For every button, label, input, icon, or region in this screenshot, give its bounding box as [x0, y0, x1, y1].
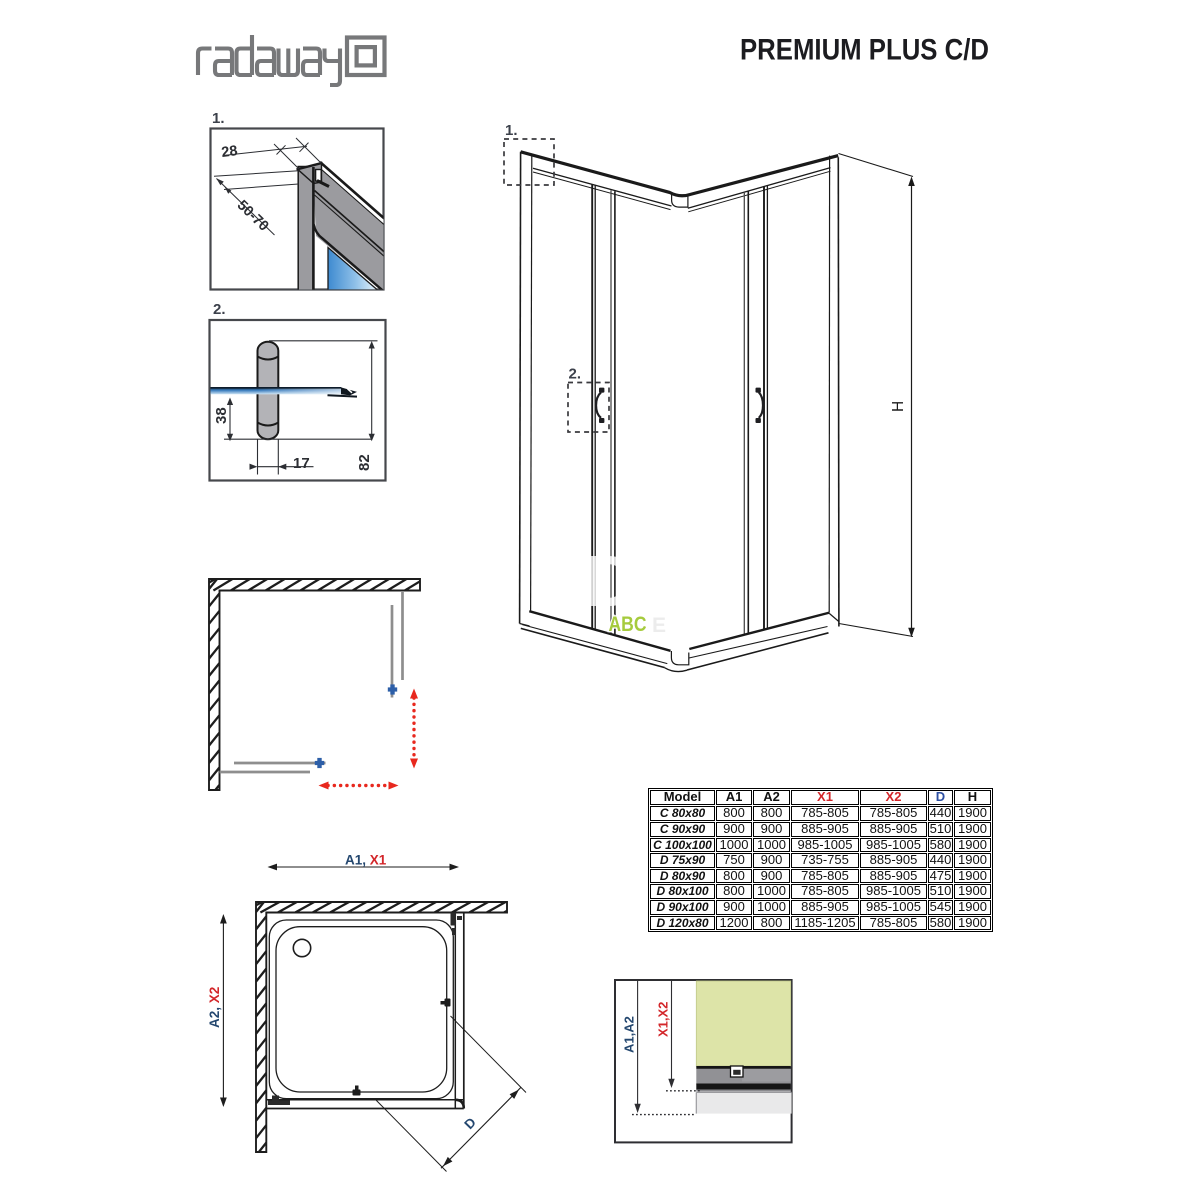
svg-text:E: E: [652, 614, 666, 637]
svg-text:H: H: [890, 401, 907, 412]
svg-text:D: D: [585, 542, 637, 622]
svg-text:17: 17: [293, 455, 310, 472]
svg-text:38: 38: [213, 407, 230, 424]
svg-text:D: D: [461, 1114, 479, 1132]
svg-text:A1,A2: A1,A2: [622, 1016, 637, 1053]
svg-text:PREMIUM PLUS C/D: PREMIUM PLUS C/D: [740, 34, 989, 67]
svg-text:1.: 1.: [212, 110, 225, 127]
svg-text:A2, X2: A2, X2: [207, 987, 222, 1028]
svg-text:28: 28: [221, 143, 239, 161]
svg-text:2.: 2.: [569, 366, 582, 383]
svg-text:82: 82: [356, 454, 373, 471]
svg-text:ABC: ABC: [609, 613, 647, 636]
svg-text:2.: 2.: [213, 301, 226, 318]
svg-text:1.: 1.: [505, 122, 518, 139]
svg-text:A1, X1: A1, X1: [345, 853, 387, 868]
svg-text:X1,X2: X1,X2: [656, 1002, 671, 1037]
